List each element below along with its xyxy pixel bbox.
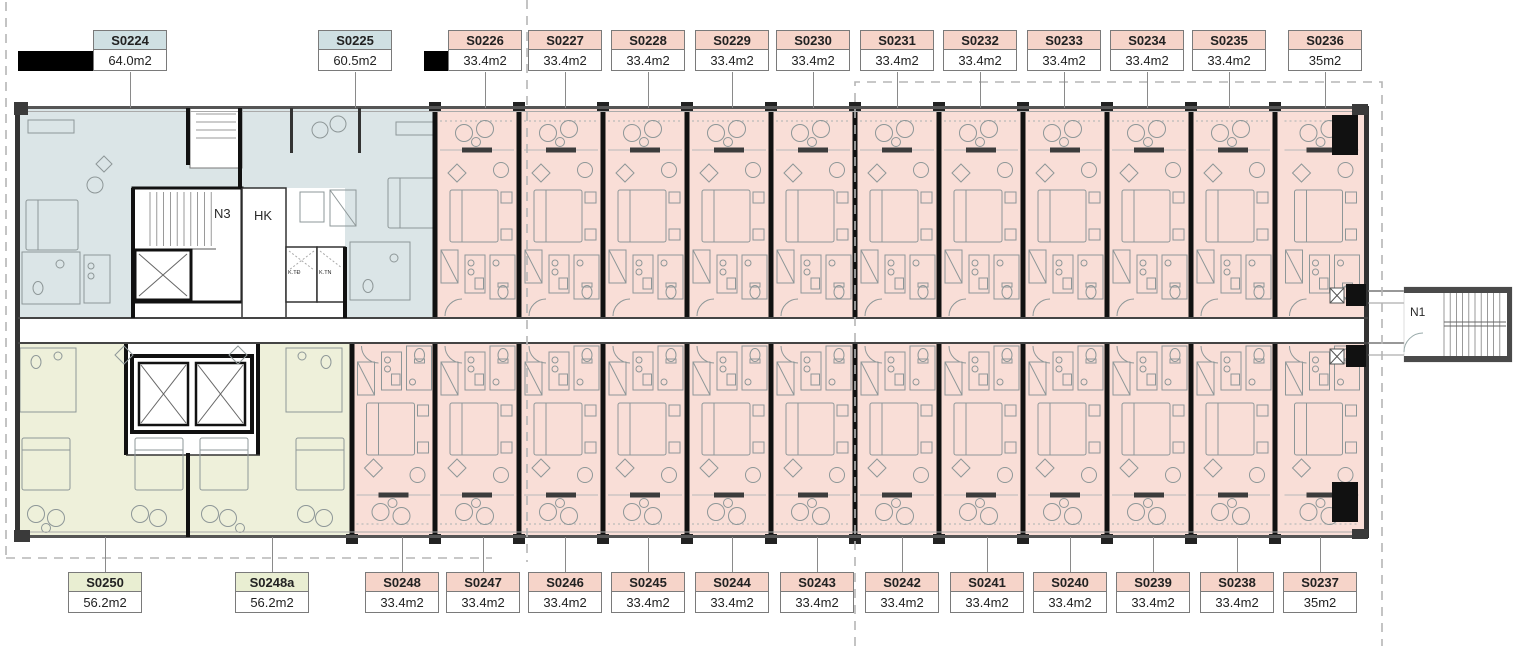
unit-id: S0243	[780, 572, 854, 592]
unit-area: 33.4m2	[865, 592, 939, 613]
unit-id: S0240	[1033, 572, 1107, 592]
tech-water-label: K.TN	[319, 270, 332, 276]
unit-area: 33.4m2	[528, 50, 602, 71]
unit-id: S0244	[695, 572, 769, 592]
unit-area: 33.4m2	[1027, 50, 1101, 71]
stair-core-label: N3	[214, 206, 231, 221]
leader-line	[817, 537, 818, 572]
unit-label-S0240: S024033.4m2	[1033, 572, 1107, 613]
unit-label-S0239: S023933.4m2	[1116, 572, 1190, 613]
unit-area: 33.4m2	[1110, 50, 1184, 71]
unit-area: 33.4m2	[528, 592, 602, 613]
unit-label-S0250: S025056.2m2	[68, 572, 142, 613]
leader-line	[272, 537, 273, 572]
unit-area: 56.2m2	[68, 592, 142, 613]
unit-id: S0250	[68, 572, 142, 592]
leader-line	[1320, 537, 1321, 572]
unit-id: S0237	[1283, 572, 1357, 592]
unit-id: S0226	[448, 30, 522, 50]
unit-area: 33.4m2	[611, 50, 685, 71]
unit-id: S0232	[943, 30, 1017, 50]
unit-id: S0228	[611, 30, 685, 50]
leader-line	[565, 72, 566, 108]
leader-line	[648, 72, 649, 108]
unit-area: 35m2	[1288, 50, 1362, 71]
unit-id: S0225	[318, 30, 392, 50]
unit-label-S0245: S024533.4m2	[611, 572, 685, 613]
leader-line	[1237, 537, 1238, 572]
unit-label-S0248: S024833.4m2	[365, 572, 439, 613]
exterior-stair-label: N1	[1410, 305, 1425, 319]
unit-area: 33.4m2	[1200, 592, 1274, 613]
leader-line	[565, 537, 566, 572]
unit-label-S0230: S023033.4m2	[776, 30, 850, 71]
floor-plan-page: N3 HK K.TĐ K.TN N1 S022464.0m2S022560.5m…	[0, 0, 1536, 646]
leader-line	[897, 72, 898, 108]
tech-electric-label: K.TĐ	[288, 270, 301, 276]
unit-id: S0231	[860, 30, 934, 50]
labels-layer: N3 HK K.TĐ K.TN N1 S022464.0m2S022560.5m…	[0, 0, 1536, 646]
unit-area: 33.4m2	[611, 592, 685, 613]
unit-id: S0239	[1116, 572, 1190, 592]
leader-line	[732, 537, 733, 572]
unit-area: 60.5m2	[318, 50, 392, 71]
unit-label-S0226: S022633.4m2	[448, 30, 522, 71]
leader-line	[1153, 537, 1154, 572]
unit-label-S0235: S023533.4m2	[1192, 30, 1266, 71]
unit-id: S0245	[611, 572, 685, 592]
unit-label-S0242: S024233.4m2	[865, 572, 939, 613]
unit-label-S0236: S023635m2	[1288, 30, 1362, 71]
unit-label-S0225: S022560.5m2	[318, 30, 392, 71]
unit-id: S0248	[365, 572, 439, 592]
unit-area: 33.4m2	[1033, 592, 1107, 613]
unit-label-S0237: S023735m2	[1283, 572, 1357, 613]
unit-id: S0235	[1192, 30, 1266, 50]
unit-label-S0238: S023833.4m2	[1200, 572, 1274, 613]
unit-label-S0229: S022933.4m2	[695, 30, 769, 71]
unit-id: S0248a	[235, 572, 309, 592]
unit-label-S0227: S022733.4m2	[528, 30, 602, 71]
leader-line	[1070, 537, 1071, 572]
unit-id: S0242	[865, 572, 939, 592]
leader-line	[485, 72, 486, 108]
unit-id: S0246	[528, 572, 602, 592]
unit-label-S0241: S024133.4m2	[950, 572, 1024, 613]
unit-label-S0246: S024633.4m2	[528, 572, 602, 613]
leader-line	[980, 72, 981, 108]
unit-area: 33.4m2	[695, 50, 769, 71]
leader-line	[987, 537, 988, 572]
unit-area: 33.4m2	[780, 592, 854, 613]
unit-label-S0228: S022833.4m2	[611, 30, 685, 71]
unit-area: 64.0m2	[93, 50, 167, 71]
unit-label-S0234: S023433.4m2	[1110, 30, 1184, 71]
unit-id: S0236	[1288, 30, 1362, 50]
leader-line	[402, 537, 403, 572]
housekeeping-label: HK	[254, 208, 272, 223]
leader-line	[130, 72, 131, 108]
unit-id: S0230	[776, 30, 850, 50]
unit-id: S0247	[446, 572, 520, 592]
unit-area: 33.4m2	[695, 592, 769, 613]
unit-area: 33.4m2	[1116, 592, 1190, 613]
unit-label-S0224: S022464.0m2	[93, 30, 167, 71]
unit-label-S0233: S023333.4m2	[1027, 30, 1101, 71]
leader-line	[355, 72, 356, 108]
unit-id: S0224	[93, 30, 167, 50]
unit-area: 35m2	[1283, 592, 1357, 613]
unit-id: S0241	[950, 572, 1024, 592]
leader-line	[1229, 72, 1230, 108]
leader-line	[483, 537, 484, 572]
unit-id: S0234	[1110, 30, 1184, 50]
unit-area: 33.4m2	[448, 50, 522, 71]
leader-line	[1147, 72, 1148, 108]
leader-line	[1325, 72, 1326, 108]
leader-line	[648, 537, 649, 572]
leader-line	[732, 72, 733, 108]
unit-label-S0247: S024733.4m2	[446, 572, 520, 613]
leader-line	[902, 537, 903, 572]
unit-label-S0248a: S0248a56.2m2	[235, 572, 309, 613]
unit-area: 33.4m2	[860, 50, 934, 71]
unit-area: 56.2m2	[235, 592, 309, 613]
unit-area: 33.4m2	[776, 50, 850, 71]
unit-area: 33.4m2	[446, 592, 520, 613]
unit-label-S0232: S023233.4m2	[943, 30, 1017, 71]
unit-area: 33.4m2	[950, 592, 1024, 613]
unit-label-S0243: S024333.4m2	[780, 572, 854, 613]
unit-id: S0233	[1027, 30, 1101, 50]
unit-id: S0229	[695, 30, 769, 50]
leader-line	[1064, 72, 1065, 108]
unit-label-S0244: S024433.4m2	[695, 572, 769, 613]
unit-id: S0227	[528, 30, 602, 50]
unit-area: 33.4m2	[365, 592, 439, 613]
unit-label-S0231: S023133.4m2	[860, 30, 934, 71]
unit-area: 33.4m2	[1192, 50, 1266, 71]
leader-line	[813, 72, 814, 108]
unit-area: 33.4m2	[943, 50, 1017, 71]
unit-id: S0238	[1200, 572, 1274, 592]
leader-line	[105, 537, 106, 572]
